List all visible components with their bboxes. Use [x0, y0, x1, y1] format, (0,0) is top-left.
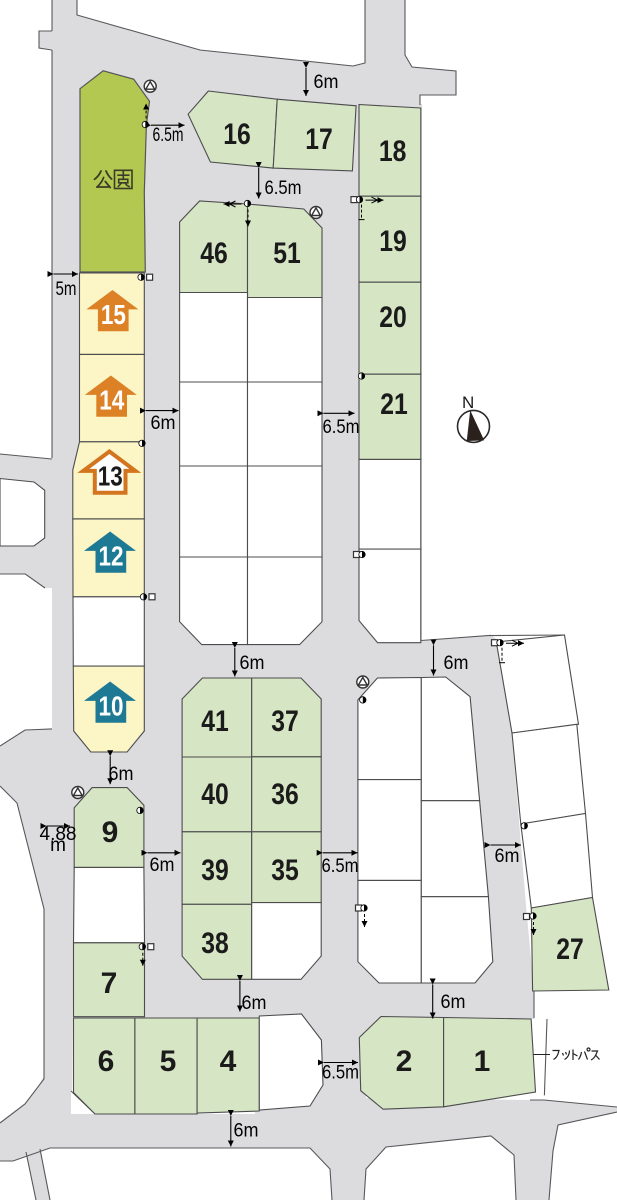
svg-text:2: 2 [396, 1045, 413, 1078]
svg-text:6m: 6m [495, 846, 520, 867]
svg-text:12: 12 [99, 541, 124, 572]
svg-text:16: 16 [223, 118, 251, 151]
svg-text:9: 9 [102, 816, 119, 849]
svg-text:6m: 6m [314, 72, 339, 93]
svg-text:7: 7 [101, 967, 118, 1000]
svg-text:6m: 6m [444, 653, 469, 674]
svg-text:m: m [50, 835, 66, 856]
svg-text:27: 27 [556, 933, 584, 966]
svg-text:51: 51 [273, 237, 301, 270]
svg-text:37: 37 [271, 705, 299, 738]
svg-text:36: 36 [271, 778, 299, 811]
svg-text:6m: 6m [240, 653, 265, 674]
svg-text:35: 35 [271, 854, 299, 887]
svg-text:13: 13 [98, 461, 123, 492]
svg-text:38: 38 [201, 927, 229, 960]
svg-text:39: 39 [201, 854, 229, 887]
svg-text:40: 40 [201, 778, 229, 811]
svg-text:6.5m: 6.5m [153, 125, 184, 146]
svg-text:6m: 6m [150, 855, 175, 876]
svg-text:15: 15 [101, 299, 126, 330]
svg-text:N: N [462, 393, 474, 412]
svg-text:6.5m: 6.5m [323, 417, 360, 438]
svg-text:14: 14 [99, 385, 124, 416]
svg-text:17: 17 [305, 123, 333, 156]
svg-text:5: 5 [160, 1045, 177, 1078]
svg-text:4: 4 [220, 1045, 237, 1078]
svg-text:6m: 6m [234, 1121, 259, 1142]
svg-text:18: 18 [379, 135, 407, 168]
svg-text:6.5m: 6.5m [265, 178, 302, 199]
svg-text:21: 21 [380, 388, 408, 421]
svg-text:1: 1 [474, 1045, 491, 1078]
svg-text:6: 6 [98, 1045, 115, 1078]
svg-text:5m: 5m [56, 279, 77, 300]
svg-text:19: 19 [379, 225, 407, 258]
svg-text:20: 20 [379, 301, 407, 334]
svg-text:6m: 6m [151, 413, 176, 434]
svg-text:6.5m: 6.5m [322, 1063, 359, 1084]
svg-text:6m: 6m [109, 764, 134, 785]
svg-text:46: 46 [200, 237, 228, 270]
svg-text:6m: 6m [441, 992, 466, 1013]
svg-text:10: 10 [99, 691, 124, 722]
svg-text:6m: 6m [242, 993, 267, 1014]
svg-text:41: 41 [201, 705, 229, 738]
svg-text:6.5m: 6.5m [322, 856, 359, 877]
